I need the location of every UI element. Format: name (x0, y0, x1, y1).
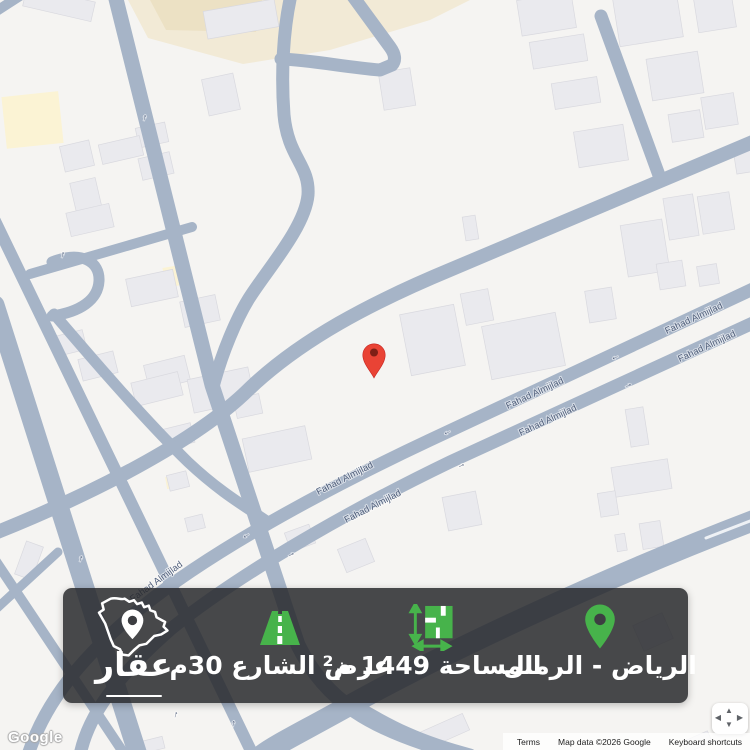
building (694, 0, 737, 33)
area-group: المساحة 1449 م² (332, 588, 532, 703)
google-logo[interactable]: Google (8, 729, 63, 746)
building (697, 192, 735, 235)
road-icon (260, 610, 300, 646)
pan-left-icon[interactable]: ◀ (715, 714, 721, 722)
building (442, 491, 482, 531)
pan-up-icon[interactable]: ▲ (725, 707, 733, 715)
building (663, 194, 699, 240)
building (460, 289, 494, 326)
building (646, 51, 704, 101)
pan-down-icon[interactable]: ▼ (725, 721, 733, 729)
building (573, 124, 628, 167)
building (697, 264, 720, 287)
pan-right-icon[interactable]: ▶ (737, 714, 743, 722)
location-pin-icon (582, 603, 619, 650)
building (597, 491, 619, 518)
marker-pin-hole (370, 349, 378, 357)
building (656, 260, 686, 290)
keyboard-pan-control[interactable]: ◀ ▲ ▼ ▶ (712, 703, 748, 734)
property-info-banner: عقار عرض الشارع 30م (63, 588, 688, 703)
brand-underline (106, 695, 162, 697)
map-attribution-bar: Terms Map data ©2026 Google Keyboard sho… (503, 733, 750, 750)
building (639, 521, 664, 550)
brand-name: عقار (95, 645, 173, 684)
building (615, 533, 628, 551)
building (400, 304, 466, 375)
building (701, 93, 739, 130)
terms-link[interactable]: Terms (517, 737, 540, 747)
dimensions-icon (409, 604, 456, 651)
brand-logo-group: عقار (69, 588, 199, 703)
location-label: الرياض - الرمال (503, 651, 697, 680)
location-group: الرياض - الرمال (505, 588, 695, 703)
building (585, 287, 617, 323)
map-data-copyright: Map data ©2026 Google (558, 737, 651, 747)
building (668, 110, 704, 143)
keyboard-shortcuts-link[interactable]: Keyboard shortcuts (669, 737, 742, 747)
map-screenshot: Fahad AlmijladFahad AlmijladFahad Almijl… (0, 0, 750, 750)
